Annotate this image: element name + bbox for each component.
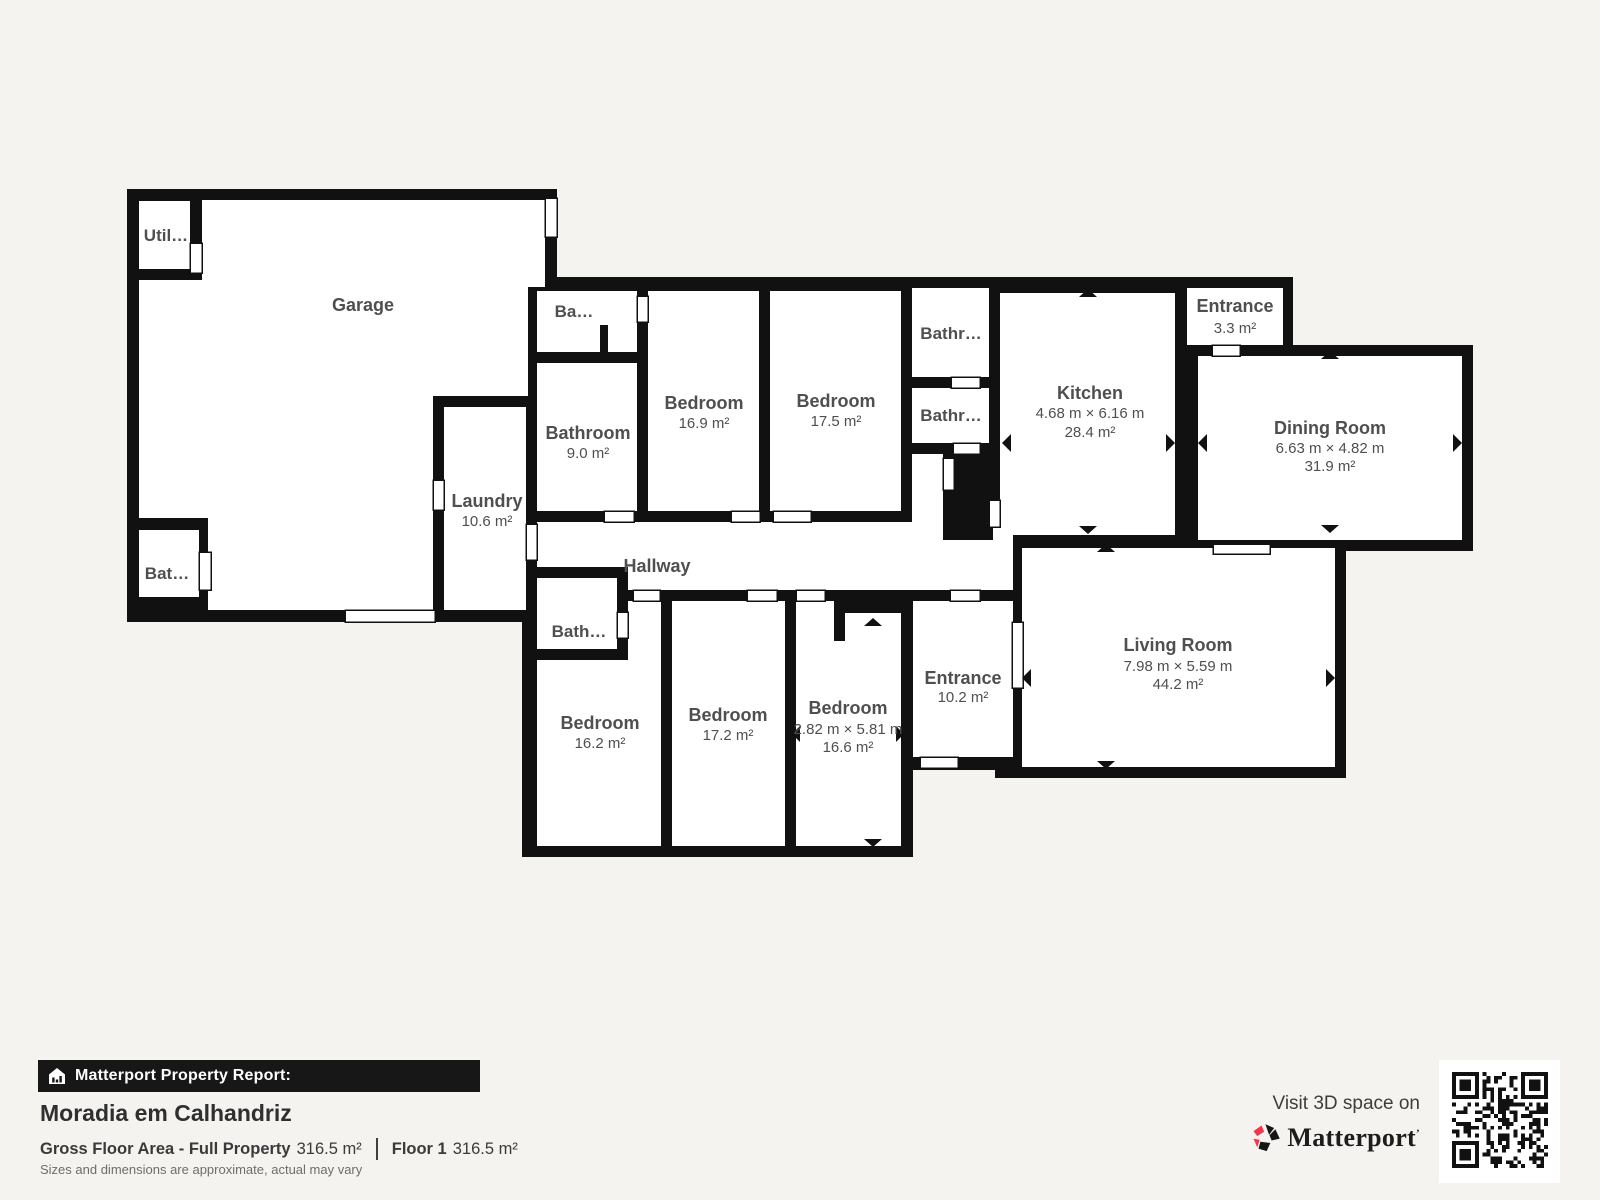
property-report-page: Garage Util… Bat… Laundry 10.6 m² Ba… Ba… xyxy=(0,0,1600,1200)
report-bar-label: Matterport Property Report: xyxy=(75,1067,291,1085)
door-opening xyxy=(617,612,628,638)
hallway-branch xyxy=(912,454,943,546)
door-opening xyxy=(773,511,811,522)
label-bath-garage: Bat… xyxy=(145,564,189,583)
label-bathroom-main-area: 9.0 m² xyxy=(567,445,610,462)
label-bedroom-4-area: 17.2 m² xyxy=(703,727,754,744)
label-bath-lower: Bath… xyxy=(552,622,607,641)
label-laundry: Laundry xyxy=(451,491,522,511)
door-opening xyxy=(920,757,958,768)
door-opening xyxy=(951,377,980,388)
label-ba-small: Ba… xyxy=(555,302,594,321)
door-opening xyxy=(637,296,648,322)
label-entrance-main-area: 10.2 m² xyxy=(938,689,989,706)
label-laundry-area: 10.6 m² xyxy=(462,513,513,530)
matterport-wordmark: Matterport’ xyxy=(1287,1123,1420,1153)
door-opening xyxy=(943,458,954,490)
label-bedroom-5-dims: 2.82 m × 5.81 m xyxy=(794,721,903,738)
label-bedroom-5-area: 16.6 m² xyxy=(823,739,874,756)
label-garage: Garage xyxy=(332,295,394,315)
label-bedroom-1: Bedroom xyxy=(664,393,743,413)
gross-area-value: 316.5 m² xyxy=(297,1140,362,1159)
label-dining-area: 31.9 m² xyxy=(1305,458,1356,475)
qr-code xyxy=(1452,1072,1548,1168)
matterport-pinwheel-icon xyxy=(1251,1123,1281,1153)
door-opening xyxy=(1012,622,1023,688)
floor-plan: Garage Util… Bat… Laundry 10.6 m² Ba… Ba… xyxy=(0,0,1600,1200)
label-bedroom-4: Bedroom xyxy=(688,705,767,725)
window-opening xyxy=(545,198,557,237)
label-bedroom-3-area: 16.2 m² xyxy=(575,735,626,752)
label-bedroom-2-area: 17.5 m² xyxy=(811,413,862,430)
door-opening xyxy=(199,552,211,590)
floor-value: 316.5 m² xyxy=(453,1140,518,1159)
label-hallway: Hallway xyxy=(623,556,690,576)
label-kitchen-dims: 4.68 m × 6.16 m xyxy=(1036,405,1145,422)
label-bathroom-top: Bathr… xyxy=(920,324,981,343)
door-opening xyxy=(989,500,1000,527)
label-living-dims: 7.98 m × 5.59 m xyxy=(1124,658,1233,675)
label-entrance-main: Entrance xyxy=(924,668,1001,688)
label-dining-dims: 6.63 m × 4.82 m xyxy=(1276,440,1385,457)
label-bedroom-1-area: 16.9 m² xyxy=(679,415,730,432)
room-ba-small xyxy=(537,291,637,352)
door-opening xyxy=(526,524,537,560)
door-opening xyxy=(190,243,202,273)
visit-3d-text: Visit 3D space on xyxy=(1180,1093,1420,1115)
label-entrance-small: Entrance xyxy=(1196,296,1273,316)
door-opening xyxy=(433,480,444,510)
label-dining: Dining Room xyxy=(1274,418,1386,438)
trademark-mark: ’ xyxy=(1416,1127,1420,1139)
house-chart-icon xyxy=(48,1067,66,1085)
door-opening xyxy=(1212,345,1240,356)
label-kitchen-area: 28.4 m² xyxy=(1065,424,1116,441)
label-kitchen: Kitchen xyxy=(1057,383,1123,403)
door-opening xyxy=(731,511,760,522)
label-utility: Util… xyxy=(144,226,188,245)
label-bathroom-mid: Bathr… xyxy=(920,406,981,425)
label-bedroom-2: Bedroom xyxy=(796,391,875,411)
disclaimer-text: Sizes and dimensions are approximate, ac… xyxy=(40,1162,362,1177)
label-bathroom-main: Bathroom xyxy=(546,423,631,443)
door-opening xyxy=(796,590,825,601)
gross-area-label: Gross Floor Area - Full Property xyxy=(40,1140,291,1159)
label-living-area: 44.2 m² xyxy=(1153,676,1204,693)
stats-divider xyxy=(376,1138,378,1160)
property-title: Moradia em Calhandriz xyxy=(40,1100,292,1127)
matterport-logo: Matterport’ xyxy=(1180,1123,1420,1153)
floor-label: Floor 1 xyxy=(392,1140,447,1159)
label-bedroom-5: Bedroom xyxy=(808,698,887,718)
floor-area-stats: Gross Floor Area - Full Property 316.5 m… xyxy=(40,1138,518,1160)
label-entrance-small-area: 3.3 m² xyxy=(1214,320,1257,337)
window-opening xyxy=(345,610,435,622)
label-living: Living Room xyxy=(1124,635,1233,655)
door-opening xyxy=(747,590,777,601)
report-header-bar: Matterport Property Report: xyxy=(38,1060,480,1092)
door-opening xyxy=(604,511,634,522)
door-opening xyxy=(953,443,980,454)
label-bedroom-3: Bedroom xyxy=(560,713,639,733)
window-opening xyxy=(1213,544,1270,554)
visit-3d-block: Visit 3D space on Matterport’ xyxy=(1180,1093,1420,1153)
door-opening xyxy=(633,590,660,601)
door-opening xyxy=(950,590,980,601)
